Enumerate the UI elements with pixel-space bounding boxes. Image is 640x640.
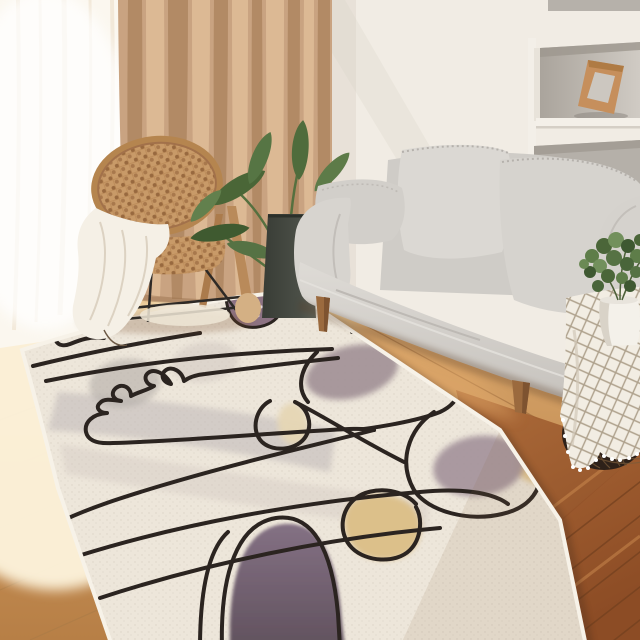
niche-return [534, 48, 540, 121]
wall-niche-top [548, 0, 640, 11]
living-room-photo [0, 0, 640, 640]
pot-rim [600, 296, 638, 304]
niche-ledge-shadow [536, 126, 640, 129]
niche-ledge [536, 118, 640, 126]
sofa-back-cushion-left [398, 145, 513, 259]
scene-canvas [0, 0, 640, 640]
wall-niche-middle [534, 42, 640, 129]
blanket-fringe-pool [140, 304, 230, 326]
chair-leg-wrap [235, 293, 261, 323]
